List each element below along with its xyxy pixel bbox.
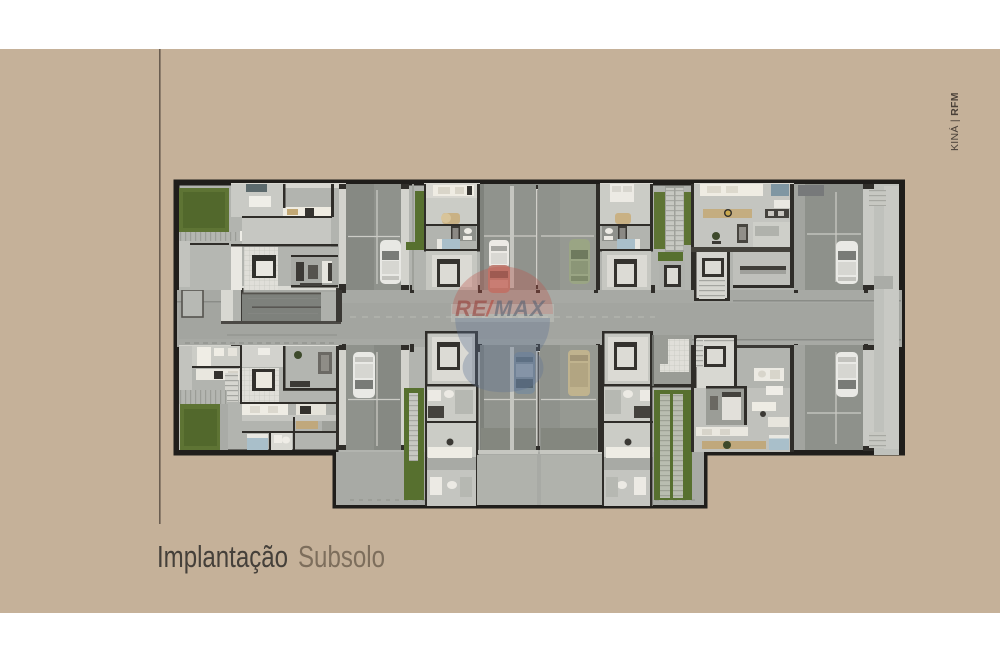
svg-text:KINÁ | RFM: KINÁ | RFM bbox=[948, 92, 961, 151]
svg-text:RE: RE bbox=[455, 296, 488, 321]
svg-text:MAX: MAX bbox=[494, 296, 546, 321]
svg-text:Implantação: Implantação bbox=[157, 539, 288, 574]
svg-text:Subsolo: Subsolo bbox=[298, 539, 385, 574]
